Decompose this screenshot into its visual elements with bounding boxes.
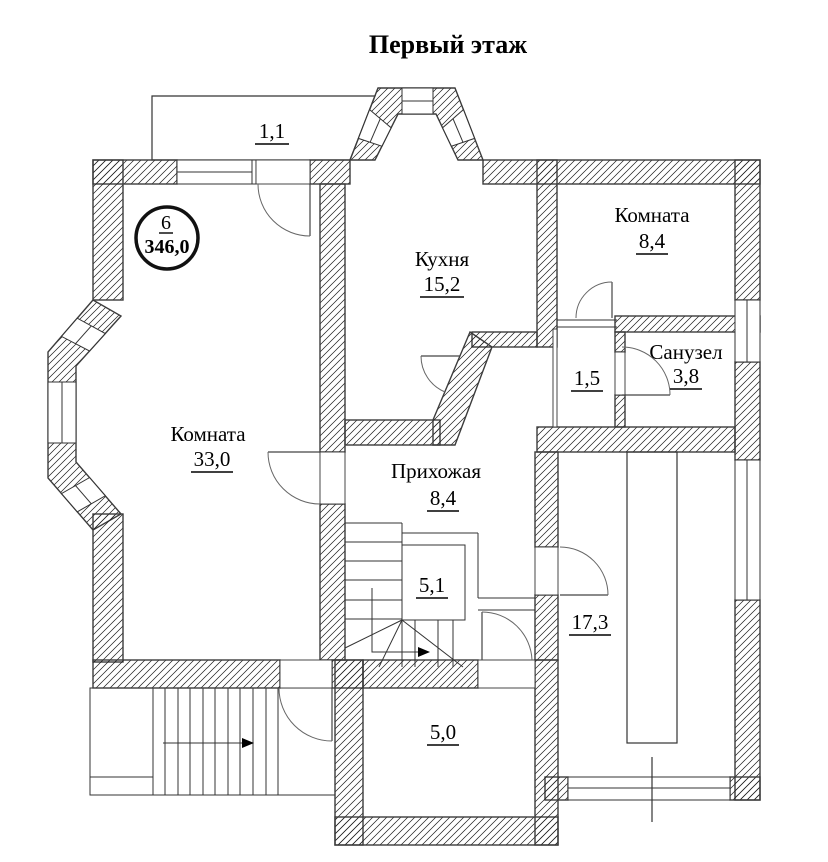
stairs-direction-arrow bbox=[242, 738, 254, 748]
floor-plan-svg: 6 346,0 Первый этаж 1,1 Кухня 15,2 Комна… bbox=[0, 0, 828, 862]
area-label-back-room: 17,3 bbox=[572, 610, 609, 634]
area-label-balcony: 1,1 bbox=[259, 119, 285, 143]
room-label-hallway: Прихожая bbox=[391, 459, 481, 483]
area-label-staircase: 5,1 bbox=[419, 573, 445, 597]
room-label-bathroom: Санузел bbox=[649, 340, 722, 364]
floor-badge: 6 346,0 bbox=[136, 207, 198, 269]
exterior-stairs bbox=[90, 688, 335, 795]
floor-badge-number: 6 bbox=[161, 212, 171, 234]
floor-plan: 6 346,0 Первый этаж 1,1 Кухня 15,2 Комна… bbox=[0, 0, 828, 862]
area-label-porch-bottom: 5,0 bbox=[430, 720, 456, 744]
area-label-bathroom: 3,8 bbox=[673, 364, 699, 388]
area-label-hallway: 8,4 bbox=[430, 486, 457, 510]
area-label-living: 33,0 bbox=[194, 447, 231, 471]
room-label-living: Комната bbox=[170, 422, 246, 446]
plan-title: Первый этаж bbox=[369, 30, 527, 59]
chimney bbox=[627, 452, 677, 822]
area-label-closet: 1,5 bbox=[574, 366, 600, 390]
room-label-kitchen: Кухня bbox=[415, 247, 470, 271]
area-label-room-small: 8,4 bbox=[639, 229, 666, 253]
room-label-room-small: Комната bbox=[614, 203, 690, 227]
area-label-kitchen: 15,2 bbox=[424, 272, 461, 296]
floor-badge-area: 346,0 bbox=[145, 236, 190, 258]
stairs-up-arrow bbox=[418, 647, 430, 657]
